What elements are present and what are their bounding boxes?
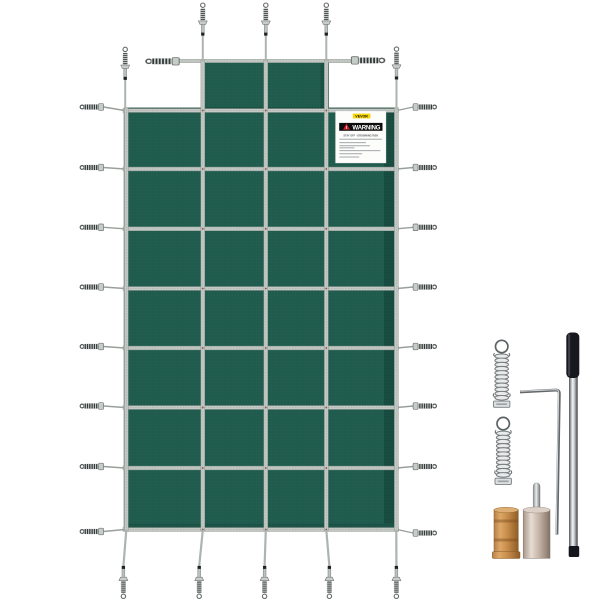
svg-text:VEVOR: VEVOR: [355, 115, 368, 119]
svg-text:!: !: [346, 125, 347, 130]
svg-text:WARNING: WARNING: [352, 125, 380, 132]
svg-text:STAY OFF - DROWNING RISK: STAY OFF - DROWNING RISK: [343, 134, 378, 137]
